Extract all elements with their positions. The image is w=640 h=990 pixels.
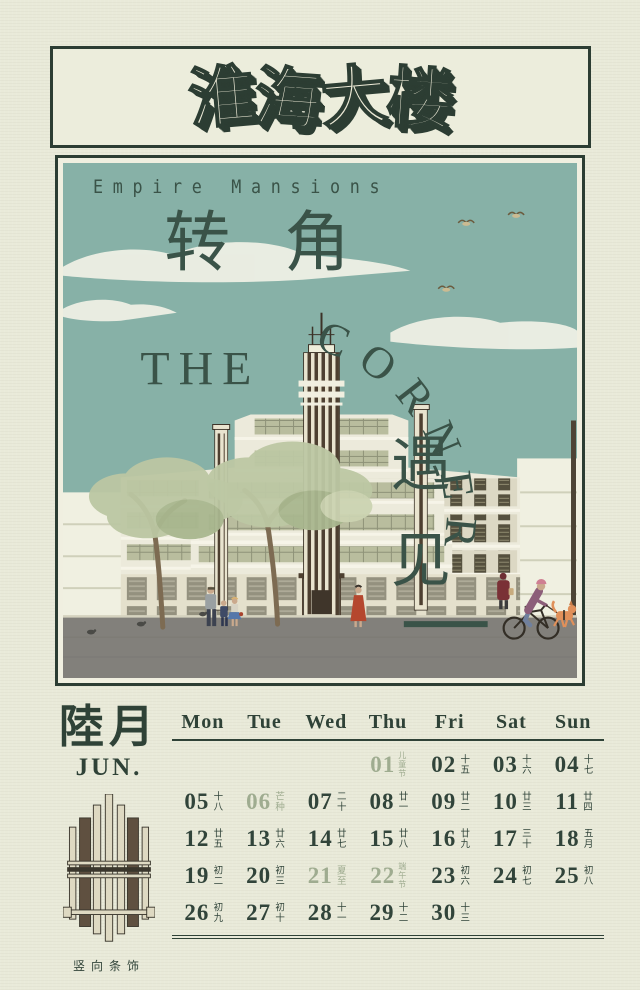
calendar-cell: 12廿五 <box>172 820 234 857</box>
lunar-label: 十五 <box>458 754 468 775</box>
lunar-label: 廿九 <box>458 828 468 849</box>
day-header: Tue <box>234 711 296 734</box>
lunar-label: 芒种 <box>273 791 283 812</box>
title-char: 大 <box>318 61 390 133</box>
title-char: 淮 <box>186 61 258 133</box>
logo-the: THE <box>140 343 260 396</box>
date-number: 07 <box>308 789 333 815</box>
date-number: 02 <box>431 752 456 778</box>
date-number: 20 <box>246 863 271 889</box>
date-number: 24 <box>493 863 518 889</box>
calendar-poster-page: 淮海大楼 <box>0 0 640 990</box>
calendar-cell: 24初七 <box>481 857 543 894</box>
calendar-cell: 27初十 <box>234 894 296 931</box>
date-number: 16 <box>431 826 456 852</box>
calendar-grid: MonTueWedThuFriSatSun 01儿童节02十五03十六04十七0… <box>166 703 604 974</box>
calendar-cell: 22端午节 <box>357 857 419 894</box>
month-name-english: JUN. <box>52 754 166 782</box>
lunar-label: 十二 <box>396 902 406 923</box>
illustration-frame: Empire Mansions 转角 THE CORNER 遇见 <box>63 163 577 678</box>
lunar-label: 十一 <box>335 902 345 923</box>
lunar-label: 二十 <box>335 791 345 812</box>
date-number: 27 <box>246 900 271 926</box>
month-block: 陸月 JUN. 竖向条饰 <box>52 703 166 974</box>
calendar-cell: 15廿八 <box>357 820 419 857</box>
calendar-cell: 29十二 <box>357 894 419 931</box>
calendar-cell: 03十六 <box>481 746 543 783</box>
lunar-label: 十六 <box>520 754 530 775</box>
calendar-cell: 07二十 <box>295 783 357 820</box>
day-header: Fri <box>419 711 481 734</box>
date-number: 13 <box>246 826 271 852</box>
date-number: 08 <box>369 789 394 815</box>
ornament-caption: 竖向条饰 <box>52 957 166 974</box>
calendar-cell <box>542 894 604 931</box>
day-header: Sun <box>542 711 604 734</box>
calendar-weeks: 01儿童节02十五03十六04十七05十八06芒种07二十08廿一09廿二10廿… <box>172 746 604 931</box>
calendar-cell: 14廿七 <box>295 820 357 857</box>
date-number: 09 <box>431 789 456 815</box>
calendar-cell: 30十三 <box>419 894 481 931</box>
lunar-label: 夏至 <box>335 865 345 886</box>
logo-cn-top: 转角 <box>164 207 404 280</box>
lunar-label: 廿六 <box>273 828 283 849</box>
lunar-label: 廿二 <box>458 791 468 812</box>
calendar-bottom-rule <box>172 935 604 939</box>
date-number: 23 <box>431 863 456 889</box>
month-name-chinese: 陸月 <box>52 703 166 753</box>
date-number: 15 <box>369 826 394 852</box>
calendar-cell: 01儿童节 <box>357 746 419 783</box>
calendar-cell: 21夏至 <box>295 857 357 894</box>
calendar-cell: 02十五 <box>419 746 481 783</box>
lunar-label: 初十 <box>273 902 283 923</box>
calendar-cell <box>172 746 234 783</box>
lunar-label: 初六 <box>458 865 468 886</box>
date-number: 06 <box>246 789 271 815</box>
title-char: 楼 <box>384 64 454 134</box>
title-char: 海 <box>252 64 322 134</box>
logo-cn-side: 遇见 <box>383 432 449 624</box>
date-number: 10 <box>493 789 518 815</box>
date-number: 29 <box>369 900 394 926</box>
calendar-cell: 04十七 <box>542 746 604 783</box>
poster-title: 淮海大楼 <box>189 64 453 130</box>
date-number: 25 <box>555 863 580 889</box>
calendar-cell <box>295 746 357 783</box>
date-number: 12 <box>184 826 209 852</box>
calendar-cell <box>234 746 296 783</box>
lunar-label: 十三 <box>458 902 468 923</box>
calendar-cell: 20初三 <box>234 857 296 894</box>
date-number: 01 <box>370 752 395 778</box>
illustration-panel: Empire Mansions 转角 THE CORNER 遇见 <box>55 155 585 686</box>
calendar-cell: 25初八 <box>542 857 604 894</box>
lunar-label: 端午节 <box>397 862 406 889</box>
lunar-label: 五月 <box>582 828 592 849</box>
day-of-week-header-row: MonTueWedThuFriSatSun <box>172 711 604 741</box>
calendar-cell: 09廿二 <box>419 783 481 820</box>
calendar-cell: 05十八 <box>172 783 234 820</box>
date-number: 21 <box>308 863 333 889</box>
lunar-label: 廿五 <box>211 828 221 849</box>
calendar-cell: 23初六 <box>419 857 481 894</box>
lunar-label: 廿四 <box>581 791 591 812</box>
calendar-cell: 10廿三 <box>481 783 543 820</box>
date-number: 18 <box>555 826 580 852</box>
lunar-label: 初二 <box>211 865 221 886</box>
the-corner-logo: 转角 THE CORNER 遇见 <box>63 169 571 678</box>
date-number: 03 <box>493 752 518 778</box>
date-number: 28 <box>308 900 333 926</box>
lunar-label: 初三 <box>273 865 283 886</box>
calendar-cell <box>481 894 543 931</box>
calendar-cell: 16廿九 <box>419 820 481 857</box>
calendar-cell: 18五月 <box>542 820 604 857</box>
lunar-label: 三十 <box>520 828 530 849</box>
day-header: Mon <box>172 711 234 734</box>
lunar-label: 廿七 <box>335 828 345 849</box>
lunar-label: 廿三 <box>520 791 530 812</box>
date-number: 30 <box>431 900 456 926</box>
calendar-cell: 19初二 <box>172 857 234 894</box>
poster-title-box: 淮海大楼 <box>50 46 591 148</box>
lunar-label: 初八 <box>582 865 592 886</box>
calendar-cell: 06芒种 <box>234 783 296 820</box>
lunar-label: 初九 <box>211 902 221 923</box>
calendar-section: 陸月 JUN. 竖向条饰 <box>52 703 604 974</box>
date-number: 22 <box>370 863 395 889</box>
day-header: Thu <box>357 711 419 734</box>
date-number: 26 <box>184 900 209 926</box>
date-number: 11 <box>555 789 579 815</box>
calendar-cell: 13廿六 <box>234 820 296 857</box>
lunar-label: 十八 <box>211 791 221 812</box>
date-number: 04 <box>555 752 580 778</box>
calendar-cell: 28十一 <box>295 894 357 931</box>
calendar-cell: 26初九 <box>172 894 234 931</box>
calendar-cell: 11廿四 <box>542 783 604 820</box>
lunar-label: 初七 <box>520 865 530 886</box>
lunar-label: 廿八 <box>396 828 406 849</box>
date-number: 05 <box>184 789 209 815</box>
lunar-label: 儿童节 <box>397 751 406 778</box>
vertical-stripe-ornament <box>63 794 155 944</box>
date-number: 14 <box>308 826 333 852</box>
calendar-cell: 08廿一 <box>357 783 419 820</box>
day-header: Sat <box>481 711 543 734</box>
lunar-label: 十七 <box>582 754 592 775</box>
date-number: 17 <box>493 826 518 852</box>
day-header: Wed <box>295 711 357 734</box>
date-number: 19 <box>184 863 209 889</box>
lunar-label: 廿一 <box>396 791 406 812</box>
calendar-cell: 17三十 <box>481 820 543 857</box>
